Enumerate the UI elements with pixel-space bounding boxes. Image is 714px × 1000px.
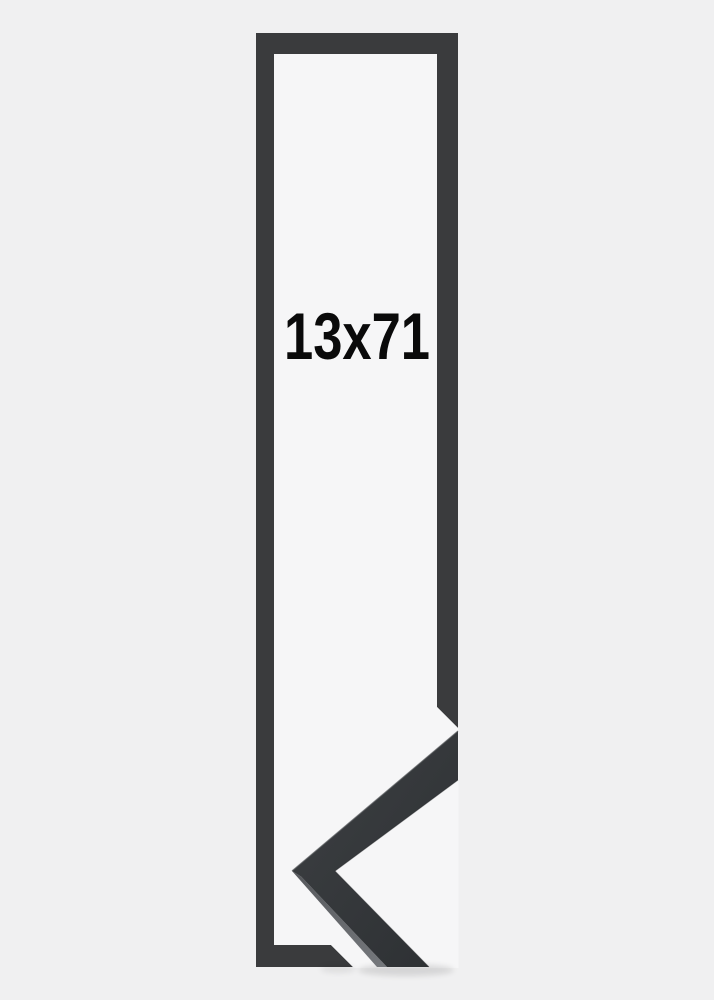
product-image-stage: 13x71 xyxy=(0,0,714,1000)
frame-outline-top-bar xyxy=(256,33,458,54)
outline-tip-shadow xyxy=(320,965,356,973)
frame-outline-left-bar xyxy=(256,33,274,967)
frame-product-image: 13x71 xyxy=(0,0,714,1000)
frame-size-label: 13x71 xyxy=(284,299,430,373)
frame-outline-right-bar xyxy=(437,33,458,728)
